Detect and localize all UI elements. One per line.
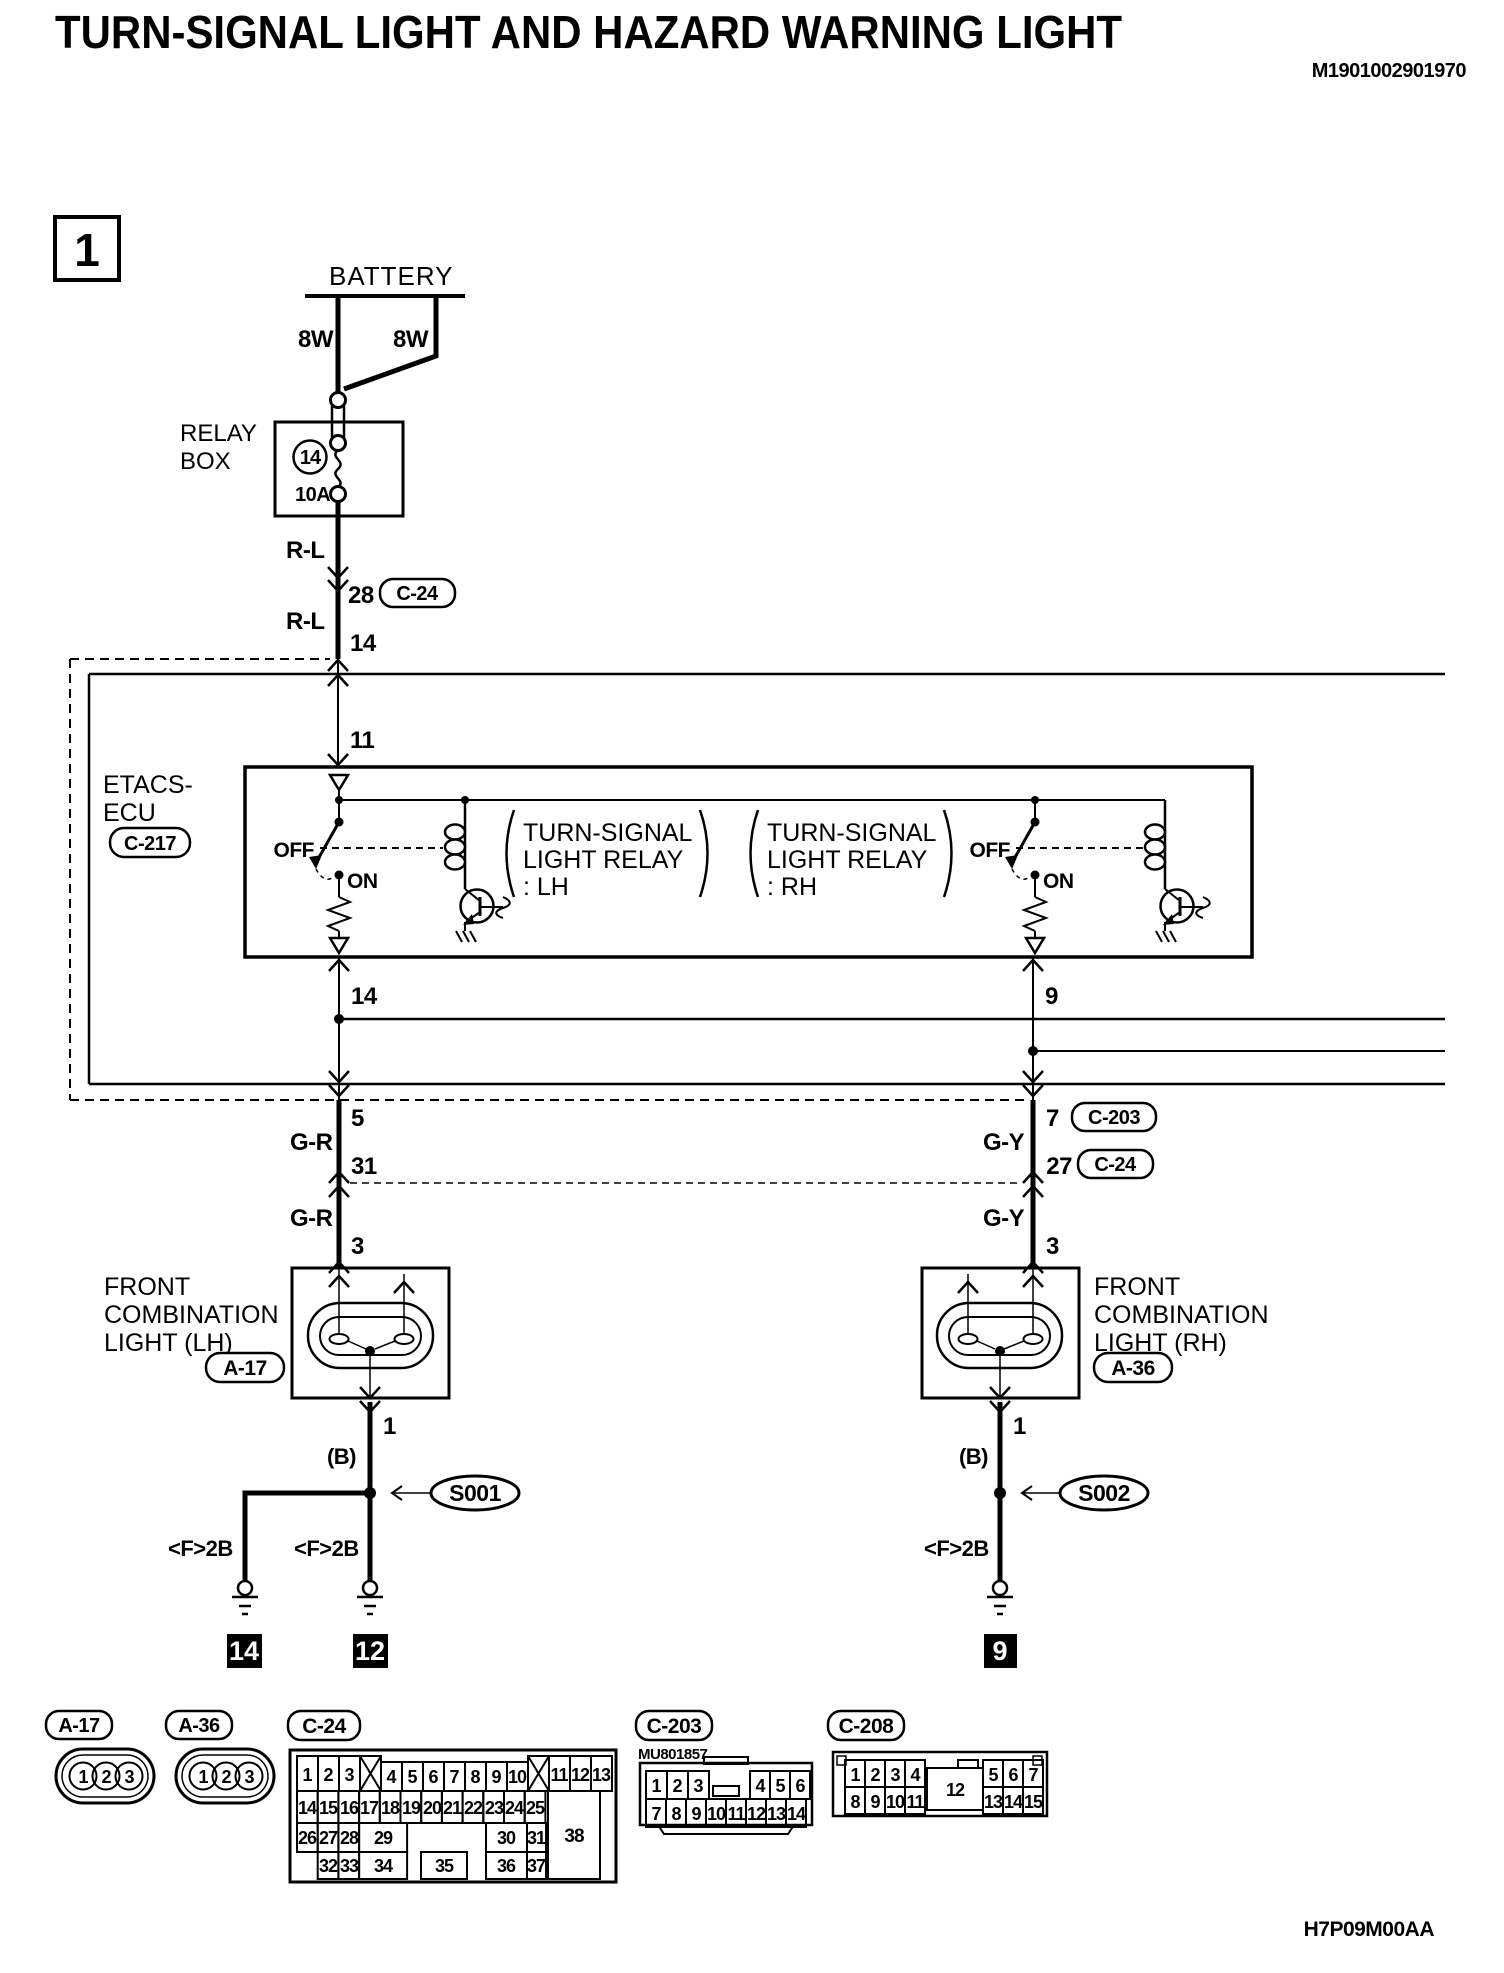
pin-number: 5 — [775, 1776, 785, 1796]
wire-f2b-left: <F>2B — [168, 1536, 233, 1561]
pin-number: 11 — [906, 1792, 924, 1812]
c208-label: C-208 — [839, 1715, 895, 1738]
rh-relay-name-1: TURN-SIGNAL — [767, 819, 937, 847]
pin-number: 1 — [198, 1767, 208, 1787]
pin-number: 13 — [984, 1792, 1003, 1812]
resistor-icon — [328, 897, 350, 931]
rh-relay-name-2: LIGHT RELAY — [767, 846, 928, 874]
etacs-ecu-group: ETACS- ECU C-217 OFF ON — [103, 767, 1252, 957]
rh-off-label: OFF — [970, 839, 1011, 862]
pin-1: 1 — [1013, 1413, 1026, 1440]
pin-number: 2 — [672, 1776, 682, 1796]
pin-number: 7 — [1028, 1765, 1038, 1785]
pin-number: 36 — [497, 1856, 516, 1876]
pin-3: 3 — [351, 1233, 364, 1260]
pin-27: 27 — [1046, 1153, 1072, 1180]
pin-number: 28 — [340, 1828, 359, 1848]
pin-number: 12 — [946, 1780, 965, 1800]
pin-number: 26 — [298, 1828, 317, 1848]
pin-number: 3 — [244, 1767, 254, 1787]
connector-c24-label: C-24 — [1094, 1154, 1137, 1176]
pin-number: 37 — [527, 1856, 546, 1876]
splice-s002-label: S002 — [1078, 1480, 1130, 1506]
splice-dot — [994, 1487, 1006, 1499]
lh-on-label: ON — [347, 870, 378, 893]
pin-number: 8 — [671, 1804, 681, 1824]
pin-number: 6 — [795, 1776, 805, 1796]
battery-group: BATTERY 8W 8W — [298, 261, 465, 393]
lh-relay-name-2: LIGHT RELAY — [523, 846, 684, 874]
lh-light-name-1: FRONT — [104, 1273, 190, 1301]
pin-number: 17 — [360, 1798, 379, 1818]
wire-f2b: <F>2B — [924, 1536, 989, 1561]
pin-number: 14 — [787, 1804, 806, 1824]
hazard-link-lines — [70, 659, 1445, 1183]
pin-number: 15 — [319, 1798, 338, 1818]
pin-number: 25 — [526, 1798, 545, 1818]
feed-wire-group: R-L 28 C-24 R-L 14 11 — [286, 501, 455, 765]
etacs-box-outline — [245, 767, 1252, 957]
connector-a17-pinout: A-17 1 2 3 — [46, 1711, 154, 1803]
ground-icon — [232, 1581, 258, 1614]
pin-7: 7 — [1046, 1105, 1059, 1132]
relay-box-label-2: BOX — [180, 448, 231, 475]
pin-number: 4 — [386, 1767, 396, 1787]
connector-c208-pinout: C-208 1 2 3 4 5 6 7 12 8 9 10 11 13 14 1 — [828, 1711, 1047, 1816]
wire-color-r-l-upper: R-L — [286, 537, 324, 564]
pin-number: 3 — [344, 1765, 354, 1785]
pin-number: 9 — [870, 1792, 880, 1812]
splice-s001-label: S001 — [449, 1480, 501, 1506]
connector-a36-pinout: A-36 1 2 3 — [166, 1711, 274, 1803]
junction-dot — [334, 1014, 344, 1024]
pin-number: 32 — [319, 1856, 338, 1876]
pin-number: 3 — [693, 1776, 703, 1796]
lh-off-label: OFF — [274, 839, 315, 862]
pin-number: 3 — [890, 1765, 900, 1785]
paren-right — [700, 810, 708, 897]
pin-number: 8 — [850, 1792, 860, 1812]
relay-box-label-1: RELAY — [180, 420, 257, 447]
pin-number: 3 — [124, 1767, 134, 1787]
ground-icon — [357, 1581, 383, 1614]
fusible-link-right: 8W — [393, 326, 429, 353]
pin-number: 14 — [298, 1798, 317, 1818]
wiring-diagram: TURN-SIGNAL LIGHT AND HAZARD WARNING LIG… — [0, 0, 1504, 1968]
pin-11: 11 — [350, 727, 375, 754]
lh-relay-name-1: TURN-SIGNAL — [523, 819, 693, 847]
junction-dot — [1028, 1046, 1038, 1056]
wire-color-b: (B) — [959, 1444, 988, 1469]
pin-28: 28 — [348, 582, 374, 609]
etacs-name-1: ETACS- — [103, 771, 193, 799]
pin-number: 9 — [691, 1804, 701, 1824]
pin-number: 4 — [910, 1765, 920, 1785]
pin-number: 6 — [428, 1767, 438, 1787]
output-terminal-icon — [1026, 938, 1044, 953]
section-number: 1 — [74, 224, 100, 276]
ground-ref-14: 14 — [229, 1636, 259, 1666]
wire-f2b-right: <F>2B — [294, 1536, 359, 1561]
pin-number: 29 — [374, 1828, 393, 1848]
bulb-icon — [308, 1268, 433, 1396]
lh-output-wire: 14 5 G-R 31 G-R 3 — [290, 957, 378, 1287]
fuse-number: 14 — [300, 447, 322, 469]
lh-front-combination-light: FRONT COMBINATION LIGHT (LH) A-17 1 (B) … — [104, 1268, 519, 1668]
lh-light-name-2: COMBINATION — [104, 1301, 279, 1329]
pin-number: 2 — [101, 1767, 111, 1787]
connector-c24-pinout: C-24 1 2 3 4 5 6 7 8 9 10 11 12 13 — [288, 1711, 616, 1882]
pin-number: 20 — [423, 1798, 442, 1818]
wire-color-r-l-lower: R-L — [286, 608, 324, 635]
resistor-icon — [1024, 897, 1046, 931]
pin-number: 15 — [1024, 1792, 1043, 1812]
wire-color-g-r-upper: G-R — [290, 1129, 333, 1156]
pin-number: 11 — [727, 1804, 745, 1824]
paren-left — [751, 810, 759, 897]
pin-number: 31 — [527, 1828, 546, 1848]
paren-left — [507, 810, 515, 897]
pin-number: 10 — [707, 1804, 726, 1824]
doc-code: M1901002901970 — [1312, 60, 1467, 82]
rh-output-wire: 9 7 C-203 G-Y 27 C-24 G-Y 3 — [983, 957, 1156, 1287]
bulb-icon — [937, 1268, 1062, 1396]
a17-label: A-17 — [58, 1715, 100, 1737]
relay-coil-icon — [445, 800, 465, 889]
connector-c24-label: C-24 — [396, 583, 439, 605]
pin-number: 2 — [323, 1765, 333, 1785]
pin-number: 4 — [755, 1776, 765, 1796]
etacs-lh-circuit: OFF ON — [274, 775, 708, 953]
wire-color-g-r-lower: G-R — [290, 1205, 333, 1232]
output-terminal-icon — [330, 938, 348, 953]
pin-number: 11 — [550, 1765, 568, 1785]
pin-31: 31 — [351, 1153, 377, 1180]
rh-light-name-2: COMBINATION — [1094, 1301, 1269, 1329]
pin-number: 2 — [221, 1767, 231, 1787]
pin-number: 34 — [374, 1856, 393, 1876]
pin-number: 2 — [870, 1765, 880, 1785]
pin-3: 3 — [1046, 1233, 1059, 1260]
connector-c203-pinout: C-203 MU801857 1 2 3 4 5 6 7 8 9 10 11 1… — [636, 1711, 812, 1834]
pin-number: 1 — [302, 1765, 312, 1785]
wire-color-g-y-upper: G-Y — [983, 1129, 1025, 1156]
pin-number: 1 — [850, 1765, 860, 1785]
pin-number: 35 — [435, 1856, 454, 1876]
etacs-name-2: ECU — [103, 799, 156, 827]
etacs-lh-pin: 14 — [351, 983, 378, 1010]
pin-number: 22 — [464, 1798, 483, 1818]
pin-number: 1 — [651, 1776, 661, 1796]
connector-c217-label: C-217 — [124, 833, 176, 855]
wiring-diagram-page: TURN-SIGNAL LIGHT AND HAZARD WARNING LIG… — [0, 0, 1504, 1968]
a36-label: A-36 — [178, 1715, 220, 1737]
pin-1: 1 — [383, 1413, 396, 1440]
transistor-icon — [461, 889, 510, 931]
pin-number: 1 — [78, 1767, 88, 1787]
pin-number: 5 — [988, 1765, 998, 1785]
switch-arm — [317, 822, 339, 861]
pin-number: 8 — [470, 1767, 480, 1787]
c203-label: C-203 — [647, 1715, 702, 1738]
ground-ref-12: 12 — [355, 1636, 385, 1666]
fuse-rating: 10A — [295, 484, 330, 506]
c203-part-number: MU801857 — [638, 1746, 708, 1763]
battery-label: BATTERY — [329, 261, 454, 291]
pin-number: 7 — [449, 1767, 459, 1787]
pin-number: 24 — [505, 1798, 524, 1818]
etacs-rh-circuit: TURN-SIGNAL LIGHT RELAY : RH OFF ON — [751, 796, 1210, 953]
rh-front-combination-light: FRONT COMBINATION LIGHT (RH) A-36 1 (B) … — [922, 1268, 1269, 1668]
rh-relay-name-3: : RH — [767, 873, 817, 901]
ground-ref-9: 9 — [992, 1636, 1007, 1666]
input-terminal-icon — [330, 775, 348, 790]
pin-number: 10 — [886, 1792, 905, 1812]
pin-number: 30 — [497, 1828, 516, 1848]
pin-number: 14 — [1004, 1792, 1023, 1812]
section-number-box: 1 — [55, 217, 119, 280]
connector-a36-label: A-36 — [1111, 1357, 1155, 1380]
pin-number: 38 — [564, 1826, 584, 1847]
pin-number: 5 — [407, 1767, 417, 1787]
paren-right — [944, 810, 952, 897]
pin-number: 13 — [767, 1804, 786, 1824]
page-title: TURN-SIGNAL LIGHT AND HAZARD WARNING LIG… — [55, 6, 1122, 58]
pin-number: 27 — [319, 1828, 338, 1848]
pin-5: 5 — [351, 1105, 364, 1132]
header: TURN-SIGNAL LIGHT AND HAZARD WARNING LIG… — [55, 6, 1466, 82]
lh-light-name-3: LIGHT (LH) — [104, 1329, 233, 1357]
connector-c203-label: C-203 — [1088, 1107, 1140, 1129]
wire-color-g-y-lower: G-Y — [983, 1205, 1025, 1232]
rh-on-label: ON — [1043, 870, 1074, 893]
pin-number: 13 — [592, 1765, 611, 1785]
pin-number: 9 — [491, 1767, 501, 1787]
lh-relay-name-3: : LH — [523, 873, 569, 901]
fusible-link-left: 8W — [298, 326, 334, 353]
pin-number: 7 — [651, 1804, 661, 1824]
pin-14-joint: 14 — [350, 630, 377, 657]
pin-number: 18 — [381, 1798, 400, 1818]
pin-number: 21 — [443, 1798, 462, 1818]
rh-light-name-1: FRONT — [1094, 1273, 1180, 1301]
pin-number: 6 — [1008, 1765, 1018, 1785]
c24-label: C-24 — [302, 1715, 346, 1738]
pin-number: 19 — [402, 1798, 421, 1818]
relay-box-group: RELAY BOX 14 10A — [180, 393, 403, 517]
pin-number: 16 — [340, 1798, 359, 1818]
switch-arm — [1013, 822, 1035, 861]
pin-number: 33 — [340, 1856, 359, 1876]
connector-a17-label: A-17 — [223, 1357, 267, 1380]
fuse-icon — [331, 393, 346, 502]
drawing-code: H7P09M00AA — [1304, 1918, 1435, 1941]
ground-icon — [987, 1581, 1013, 1614]
transistor-icon — [1161, 889, 1210, 931]
relay-coil-icon — [1145, 800, 1165, 889]
pin-number: 23 — [485, 1798, 504, 1818]
pin-number: 12 — [571, 1765, 590, 1785]
pin-number: 10 — [508, 1767, 527, 1787]
pin-number: 12 — [747, 1804, 766, 1824]
etacs-rh-pin: 9 — [1045, 983, 1058, 1010]
wire-color-b: (B) — [327, 1444, 356, 1469]
